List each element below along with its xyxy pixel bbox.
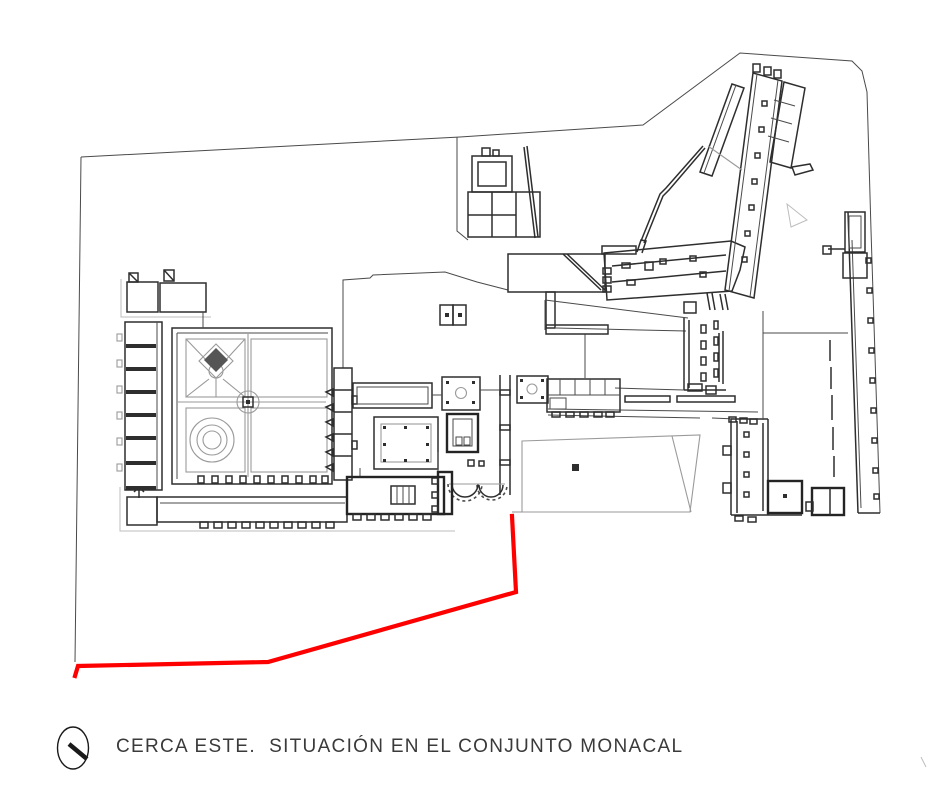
- pillared-gallery: [684, 318, 726, 394]
- north-range-building: [508, 254, 608, 334]
- service-walls: [547, 379, 758, 424]
- caption-text: CERCA ESTE. SITUACIÓN EN EL CONJUNTO MON…: [116, 736, 683, 758]
- passage-band: [545, 300, 688, 331]
- kiosk-glyph: [440, 305, 466, 325]
- south-range: [120, 477, 455, 531]
- stray-mark: [921, 757, 926, 767]
- site-boundary: [75, 53, 880, 662]
- north-indicator-icon: [54, 721, 94, 773]
- east-corridor: [723, 419, 802, 522]
- cerca-este-line: [75, 516, 516, 676]
- walled-garden: [512, 435, 700, 512]
- main-cloister: [172, 328, 333, 484]
- site-plan-drawing: [0, 0, 933, 785]
- north-cluster-building: [457, 137, 540, 240]
- diagonal-building: [641, 64, 813, 298]
- tilted-rooms-building: [602, 240, 745, 313]
- caption: CERCA ESTE. SITUACIÓN EN EL CONJUNTO MON…: [54, 720, 683, 774]
- right-perimeter-wall: [763, 212, 880, 515]
